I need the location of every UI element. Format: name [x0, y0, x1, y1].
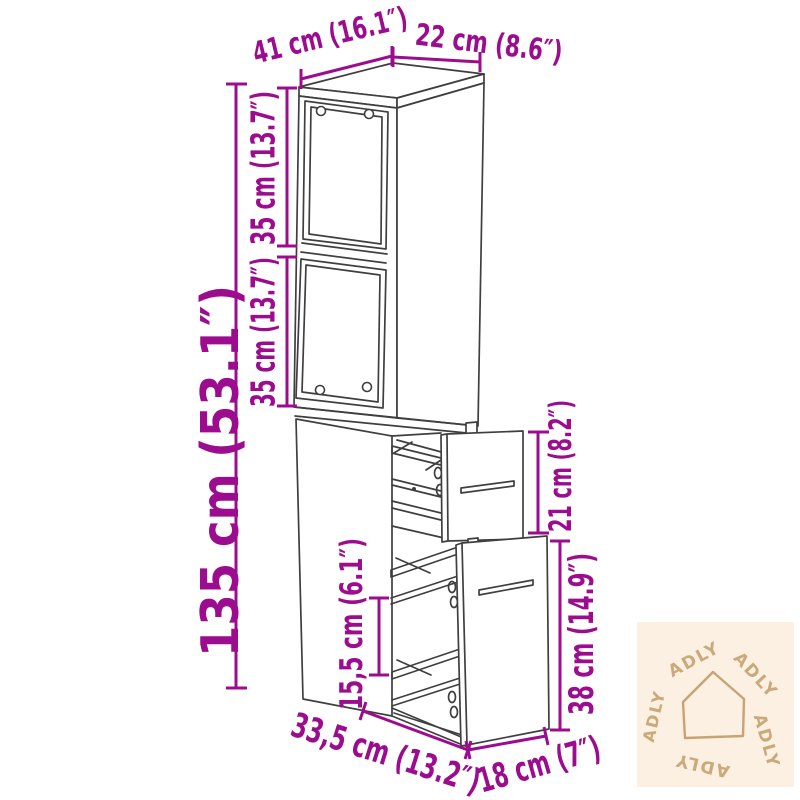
dim-height-total: 135 cm (53.1″) [191, 84, 251, 688]
drawer-opening-top-edge [392, 433, 441, 436]
dim-label-interior-clearance: 15,5 cm (6.1″) [334, 538, 370, 710]
drawer-top-front-edge [447, 434, 448, 541]
cabinet-drawing [294, 63, 549, 748]
watermark: ADLY ADLY ADLY ADLY ADLY [637, 622, 794, 787]
drawer-bottom-basket-upper [391, 547, 458, 608]
product-dimension-diagram: 41 cm (16.1″) 22 cm (8.6″) 135 cm (53.1″… [0, 0, 800, 800]
screw-hole [317, 107, 326, 116]
dim-depth-top: 22 cm (8.6″) [393, 18, 564, 72]
dim-shelf-bottom: 35 cm (13.7″) [244, 257, 297, 407]
screw-hole [363, 383, 372, 392]
dim-shelf-top: 35 cm (13.7″) [244, 88, 297, 246]
dim-label-shelf-top: 35 cm (13.7″) [244, 91, 283, 245]
dim-label-drawer-bottom-height: 38 cm (14.9″) [562, 553, 602, 715]
dim-label-height-total: 135 cm (53.1″) [191, 285, 251, 657]
dim-label-drawer-top-height: 21 cm (8.2″) [543, 400, 579, 532]
drawer-top-basket [392, 440, 445, 538]
cabinet-diagram-canvas: 41 cm (16.1″) 22 cm (8.6″) 135 cm (53.1″… [0, 0, 800, 800]
dim-drawer-top-height: 21 cm (8.2″) [528, 400, 579, 533]
drawer-bottom-front [456, 536, 549, 746]
dim-label-shelf-bottom: 35 cm (13.7″) [244, 257, 283, 407]
dim-drawer-bottom-height: 38 cm (14.9″) [550, 541, 602, 730]
cabinet-side-face [397, 83, 484, 426]
screw-hole [316, 386, 325, 395]
dim-label-depth-top: 22 cm (8.6″) [413, 18, 564, 71]
screw-hole [365, 110, 374, 119]
dim-label-width-top: 41 cm (16.1″) [249, 1, 411, 72]
